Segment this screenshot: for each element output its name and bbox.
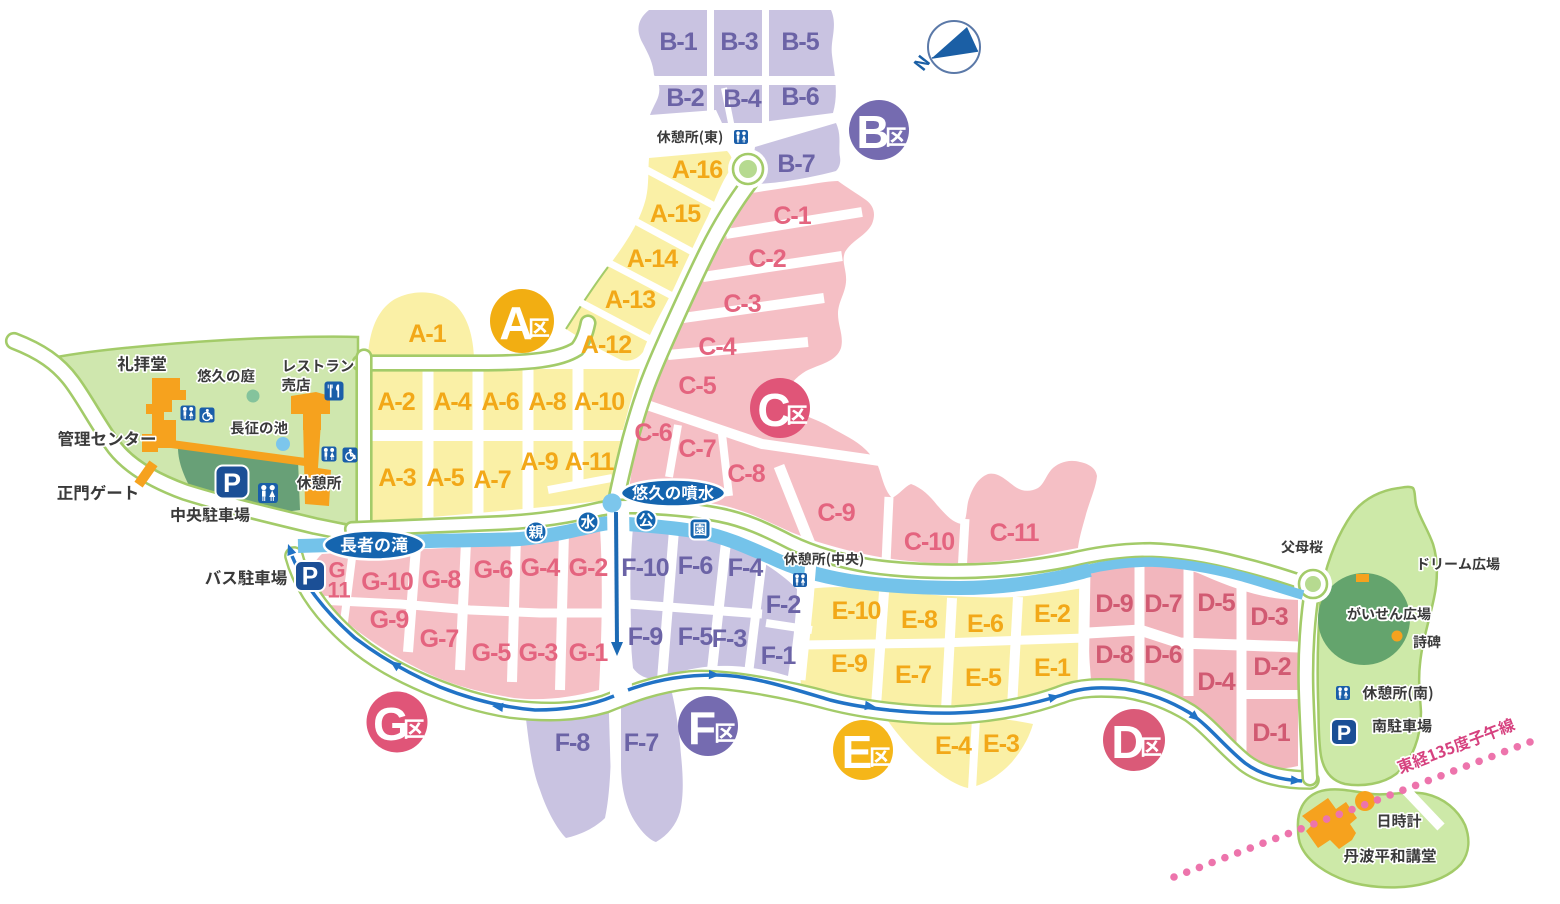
svg-text:A-2: A-2	[377, 388, 414, 416]
svg-text:G-3: G-3	[519, 639, 558, 667]
svg-text:C-6: C-6	[634, 419, 671, 447]
svg-text:C-3: C-3	[723, 290, 760, 318]
svg-text:C-1: C-1	[773, 202, 811, 230]
svg-text:E-6: E-6	[967, 610, 1003, 638]
svg-text:P: P	[302, 564, 318, 591]
svg-text:A-5: A-5	[426, 464, 464, 492]
svg-text:F-6: F-6	[678, 552, 713, 580]
svg-text:F-9: F-9	[628, 623, 663, 651]
svg-text:B: B	[856, 106, 889, 158]
svg-text:A-13: A-13	[605, 286, 655, 314]
svg-text:B-4: B-4	[723, 85, 761, 113]
svg-text:E-5: E-5	[965, 664, 1002, 692]
svg-text:A-6: A-6	[481, 388, 518, 416]
svg-text:A-3: A-3	[378, 464, 415, 492]
svg-text:C-10: C-10	[904, 528, 954, 556]
svg-text:F-3: F-3	[712, 625, 747, 653]
svg-text:C-2: C-2	[748, 245, 785, 273]
svg-text:E-4: E-4	[935, 732, 972, 760]
svg-text:F-10: F-10	[621, 554, 669, 582]
svg-text:C-4: C-4	[698, 333, 736, 361]
svg-text:A-16: A-16	[672, 156, 722, 184]
svg-text:F-7: F-7	[624, 729, 659, 757]
svg-text:B-2: B-2	[666, 84, 703, 112]
svg-text:C: C	[757, 384, 790, 436]
svg-text:C-11: C-11	[990, 519, 1040, 547]
svg-text:P: P	[1337, 721, 1351, 745]
svg-text:C-9: C-9	[817, 499, 854, 527]
svg-text:E-3: E-3	[983, 730, 1019, 758]
svg-text:D-7: D-7	[1144, 590, 1181, 618]
svg-text:F-1: F-1	[761, 642, 797, 670]
svg-text:G: G	[373, 698, 409, 750]
svg-text:B-6: B-6	[781, 83, 818, 111]
svg-text:E-8: E-8	[901, 606, 938, 634]
svg-text:A-14: A-14	[627, 245, 678, 273]
svg-text:C-5: C-5	[678, 372, 716, 400]
svg-text:A-15: A-15	[650, 200, 701, 228]
svg-text:E-9: E-9	[831, 650, 867, 678]
svg-text:D-4: D-4	[1197, 668, 1235, 696]
svg-text:G-6: G-6	[474, 556, 513, 584]
svg-text:F-5: F-5	[678, 623, 714, 651]
svg-text:E-7: E-7	[895, 661, 931, 689]
svg-text:A-4: A-4	[433, 388, 471, 416]
svg-text:D-3: D-3	[1250, 603, 1287, 631]
svg-text:E-10: E-10	[832, 597, 881, 625]
svg-text:D-8: D-8	[1095, 641, 1133, 669]
svg-text:G-9: G-9	[370, 606, 409, 634]
svg-text:B-1: B-1	[659, 28, 697, 56]
svg-text:F-4: F-4	[728, 554, 764, 582]
svg-text:D-5: D-5	[1197, 589, 1235, 617]
svg-text:A-8: A-8	[528, 388, 566, 416]
svg-text:F-8: F-8	[555, 729, 591, 757]
svg-text:B-5: B-5	[781, 28, 819, 56]
svg-text:F-2: F-2	[766, 591, 801, 619]
svg-text:E: E	[842, 726, 873, 778]
svg-text:B-7: B-7	[777, 150, 814, 178]
svg-text:D-6: D-6	[1144, 641, 1181, 669]
svg-text:A-9: A-9	[520, 448, 557, 476]
svg-text:11: 11	[327, 578, 350, 603]
svg-text:D-2: D-2	[1253, 653, 1290, 681]
svg-text:D: D	[1111, 716, 1144, 768]
svg-text:G-4: G-4	[521, 554, 561, 582]
svg-text:E-1: E-1	[1034, 654, 1071, 682]
svg-text:C-8: C-8	[727, 460, 765, 488]
svg-text:G-2: G-2	[569, 554, 608, 582]
svg-text:A: A	[499, 297, 532, 349]
svg-text:D-9: D-9	[1095, 590, 1132, 618]
svg-text:B-3: B-3	[720, 28, 757, 56]
svg-text:E-2: E-2	[1034, 600, 1070, 628]
svg-text:G-8: G-8	[422, 566, 462, 594]
svg-text:A-11: A-11	[565, 448, 615, 476]
svg-text:P: P	[223, 468, 241, 498]
svg-text:G-10: G-10	[361, 568, 413, 596]
svg-text:A-7: A-7	[473, 466, 510, 494]
svg-text:G-7: G-7	[420, 625, 459, 653]
svg-text:A-1: A-1	[408, 320, 446, 348]
svg-text:G-5: G-5	[472, 639, 512, 667]
svg-text:G-1: G-1	[569, 639, 609, 667]
svg-text:A-12: A-12	[581, 331, 631, 359]
svg-text:C-7: C-7	[678, 435, 715, 463]
svg-text:D-1: D-1	[1252, 719, 1290, 747]
svg-text:F: F	[688, 702, 716, 754]
svg-text:A-10: A-10	[574, 388, 624, 416]
